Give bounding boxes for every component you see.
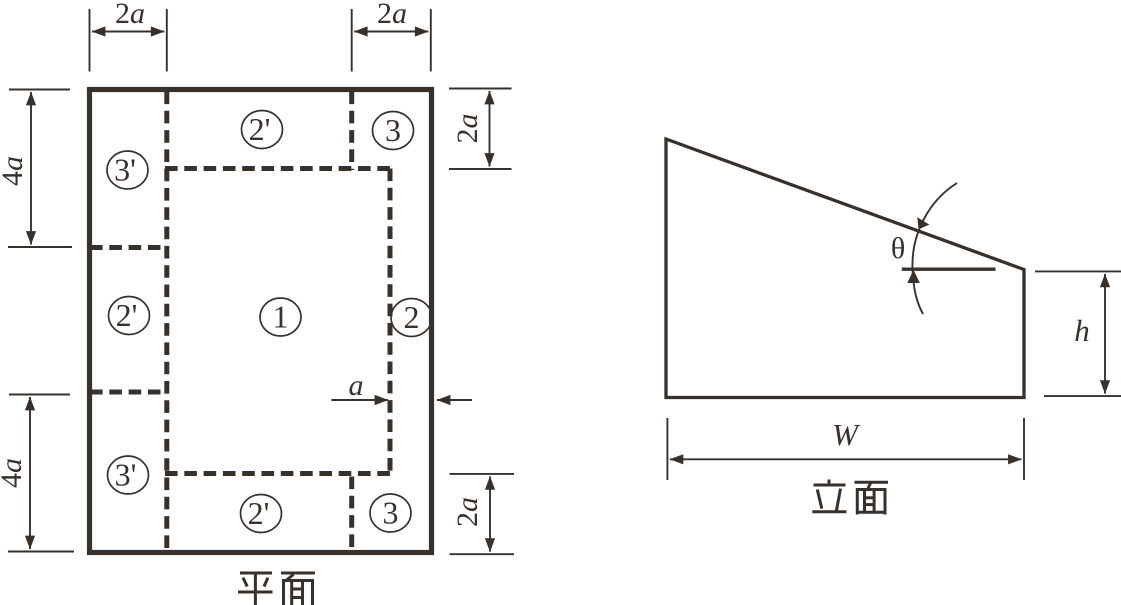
svg-text:3: 3	[385, 112, 401, 148]
svg-text:3': 3'	[114, 152, 136, 188]
svg-text:1: 1	[273, 299, 289, 335]
svg-text:2: 2	[404, 299, 420, 335]
svg-text:h: h	[1074, 313, 1090, 348]
svg-text:4a: 4a	[0, 458, 28, 488]
svg-text:a: a	[349, 369, 364, 402]
svg-text:W: W	[832, 417, 861, 452]
svg-text:θ: θ	[891, 232, 905, 265]
svg-text:3: 3	[383, 495, 399, 531]
svg-text:3': 3'	[115, 457, 137, 493]
svg-text:2': 2'	[249, 111, 271, 147]
svg-text:2': 2'	[116, 297, 138, 333]
svg-text:2a: 2a	[115, 0, 145, 30]
svg-text:4a: 4a	[0, 156, 29, 186]
svg-text:2': 2'	[248, 495, 270, 531]
svg-text:2a: 2a	[451, 114, 484, 144]
svg-text:2a: 2a	[377, 0, 407, 30]
svg-text:2a: 2a	[451, 497, 484, 527]
